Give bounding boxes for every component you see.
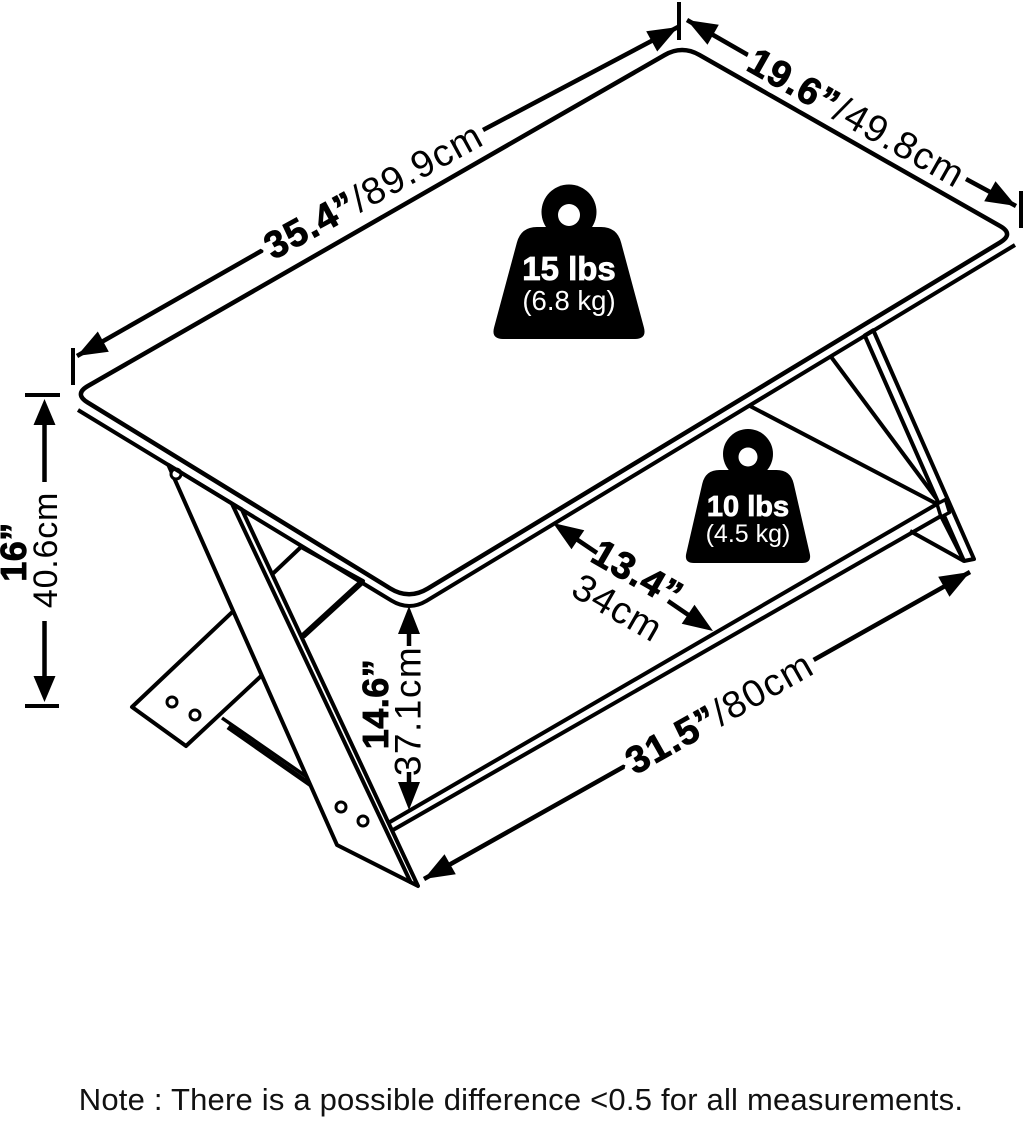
svg-text:(6.8 kg): (6.8 kg) xyxy=(522,285,615,316)
svg-text:10 lbs: 10 lbs xyxy=(707,491,789,523)
svg-text:(4.5 kg): (4.5 kg) xyxy=(706,520,791,548)
svg-text:15 lbs: 15 lbs xyxy=(522,250,616,287)
svg-text:37.1cm: 37.1cm xyxy=(387,646,428,776)
svg-text:Note : There is a possible dif: Note : There is a possible difference <0… xyxy=(79,1082,963,1117)
svg-text:40.6cm: 40.6cm xyxy=(27,492,65,608)
